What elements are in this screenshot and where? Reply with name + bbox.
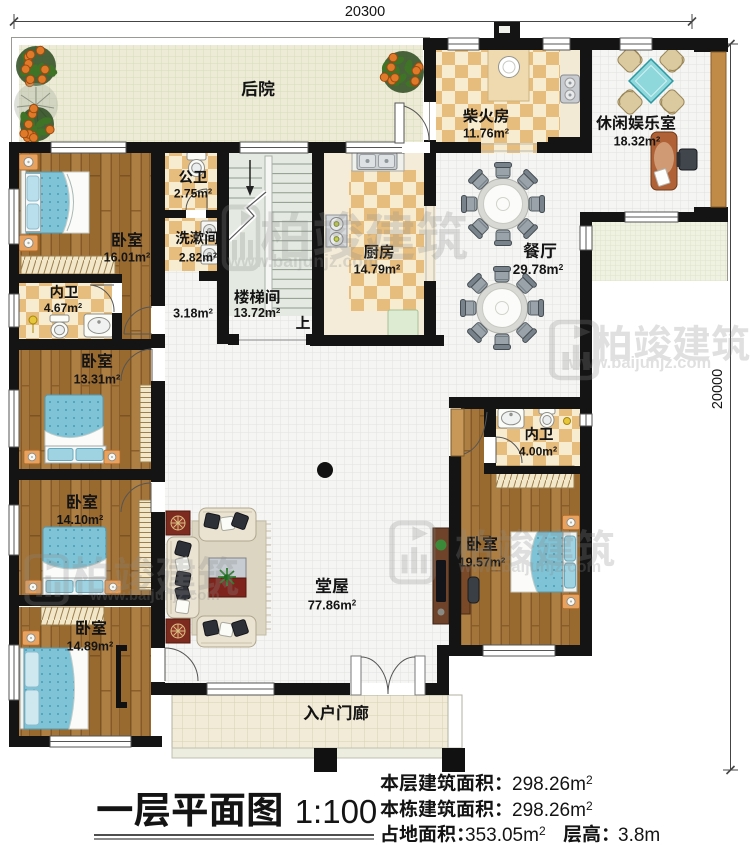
svg-text:www.baijunjz.com: www.baijunjz.com <box>89 587 219 604</box>
svg-text:4.00m2: 4.00m2 <box>519 444 557 458</box>
svg-text:353.05m2: 353.05m2 <box>465 824 546 846</box>
svg-text:4.67m2: 4.67m2 <box>44 301 82 315</box>
svg-text:20300: 20300 <box>345 4 385 20</box>
svg-text:2.82m2: 2.82m2 <box>179 250 217 264</box>
svg-text:16.01m2: 16.01m2 <box>104 251 151 265</box>
svg-text:13.31m2: 13.31m2 <box>74 373 121 387</box>
svg-text:18.32m2: 18.32m2 <box>614 135 661 149</box>
svg-text:77.86m2: 77.86m2 <box>308 598 357 613</box>
svg-text:298.26m2: 298.26m2 <box>512 799 593 821</box>
svg-text:13.72m2: 13.72m2 <box>234 306 281 320</box>
svg-text:2.75m2: 2.75m2 <box>174 186 212 200</box>
svg-text:1:100: 1:100 <box>295 793 378 830</box>
svg-text:298.26m2: 298.26m2 <box>512 773 593 795</box>
svg-text:20000: 20000 <box>710 369 726 409</box>
svg-text:11.76m2: 11.76m2 <box>463 127 509 141</box>
svg-text:29.78m2: 29.78m2 <box>513 262 564 277</box>
svg-text:3.8m: 3.8m <box>618 825 660 846</box>
svg-text:14.10m2: 14.10m2 <box>57 513 104 527</box>
svg-text:www.baijunjz.com: www.baijunjz.com <box>568 354 711 372</box>
svg-text:www.baijunjz.com: www.baijunjz.com <box>226 251 378 271</box>
svg-text:www.baijunjz.com: www.baijunjz.com <box>458 558 601 576</box>
svg-text:3.18m2: 3.18m2 <box>173 307 213 321</box>
svg-text:14.89m2: 14.89m2 <box>67 640 114 654</box>
